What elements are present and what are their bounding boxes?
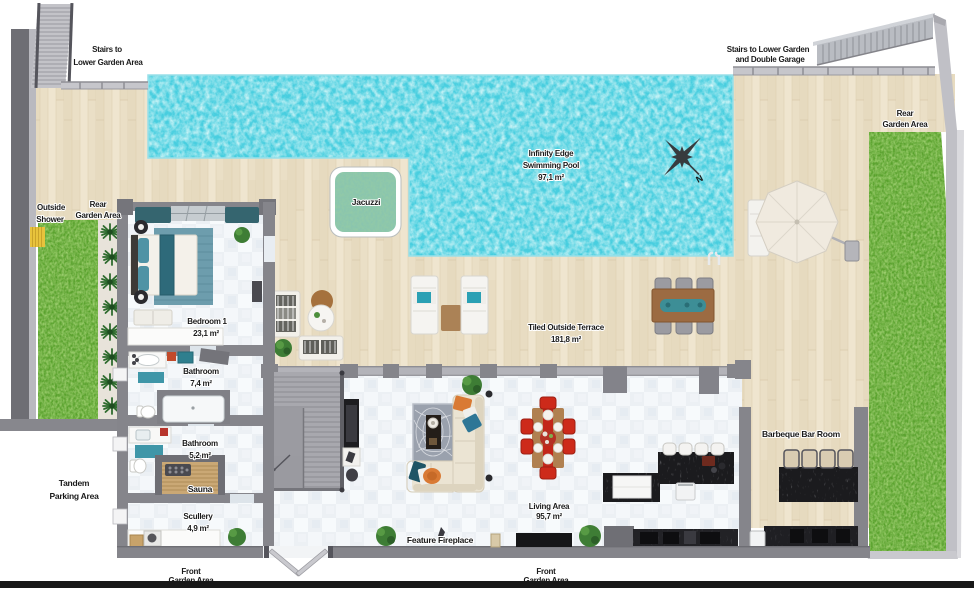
svg-text:Lower Garden Area: Lower Garden Area: [73, 58, 143, 67]
svg-text:Parking Area: Parking Area: [49, 491, 99, 501]
svg-text:Front: Front: [181, 567, 201, 576]
svg-text:Garden Area: Garden Area: [883, 120, 929, 129]
svg-text:Living Area: Living Area: [529, 502, 570, 511]
svg-text:Outside: Outside: [37, 203, 66, 212]
svg-text:Front: Front: [536, 567, 556, 576]
svg-text:Bathroom: Bathroom: [183, 367, 219, 376]
svg-text:Shower: Shower: [36, 215, 64, 224]
svg-text:23,1 m²: 23,1 m²: [193, 329, 219, 338]
svg-text:95,7 m²: 95,7 m²: [536, 512, 562, 521]
svg-text:Bedroom 1: Bedroom 1: [187, 317, 227, 326]
svg-text:Stairs to: Stairs to: [92, 45, 122, 54]
svg-text:181,8 m²: 181,8 m²: [551, 335, 582, 344]
svg-text:and Double Garage: and Double Garage: [735, 55, 805, 64]
svg-text:Sauna: Sauna: [188, 484, 213, 494]
svg-text:97,1 m²: 97,1 m²: [538, 173, 564, 182]
svg-text:Barbeque Bar Room: Barbeque Bar Room: [762, 429, 841, 439]
svg-text:7,4 m²: 7,4 m²: [190, 379, 212, 388]
svg-text:Stairs to Lower Garden: Stairs to Lower Garden: [727, 45, 810, 54]
svg-text:Scullery: Scullery: [183, 512, 213, 521]
svg-text:Tiled Outside Terrace: Tiled Outside Terrace: [528, 323, 605, 332]
svg-text:Infinity Edge: Infinity Edge: [529, 149, 575, 158]
svg-text:4,9 m²: 4,9 m²: [187, 524, 209, 533]
svg-text:Rear: Rear: [897, 109, 914, 118]
svg-text:Rear: Rear: [90, 200, 107, 209]
svg-text:5,2 m²: 5,2 m²: [189, 451, 211, 460]
svg-text:Bathroom: Bathroom: [182, 439, 218, 448]
svg-text:Garden Area: Garden Area: [76, 211, 122, 220]
svg-text:Tandem: Tandem: [59, 478, 90, 488]
svg-text:Swimming Pool: Swimming Pool: [523, 161, 579, 170]
svg-text:Jacuzzi: Jacuzzi: [352, 197, 381, 207]
svg-text:Feature Fireplace: Feature Fireplace: [407, 535, 474, 545]
